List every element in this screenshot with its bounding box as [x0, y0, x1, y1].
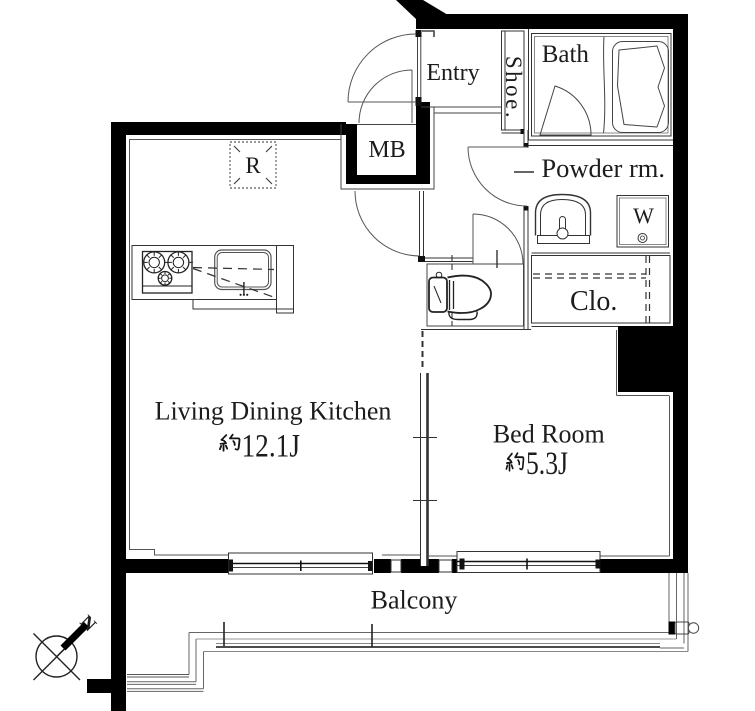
- svg-text:Shoe.: Shoe.: [501, 56, 526, 120]
- svg-text:Balcony: Balcony: [371, 586, 458, 615]
- svg-text:R: R: [245, 153, 261, 178]
- svg-text:5.3J: 5.3J: [526, 446, 568, 482]
- svg-text:Clo.: Clo.: [570, 286, 617, 317]
- svg-text:Living Dining Kitchen: Living Dining Kitchen: [155, 397, 392, 426]
- svg-text:MB: MB: [368, 137, 405, 163]
- svg-text:12.1J: 12.1J: [242, 429, 301, 465]
- svg-text:Bed Room: Bed Room: [493, 420, 605, 449]
- svg-text:Entry: Entry: [426, 60, 479, 86]
- svg-text:Bath: Bath: [542, 41, 590, 68]
- svg-text:Powder rm.: Powder rm.: [541, 153, 665, 183]
- svg-text:W: W: [633, 203, 654, 228]
